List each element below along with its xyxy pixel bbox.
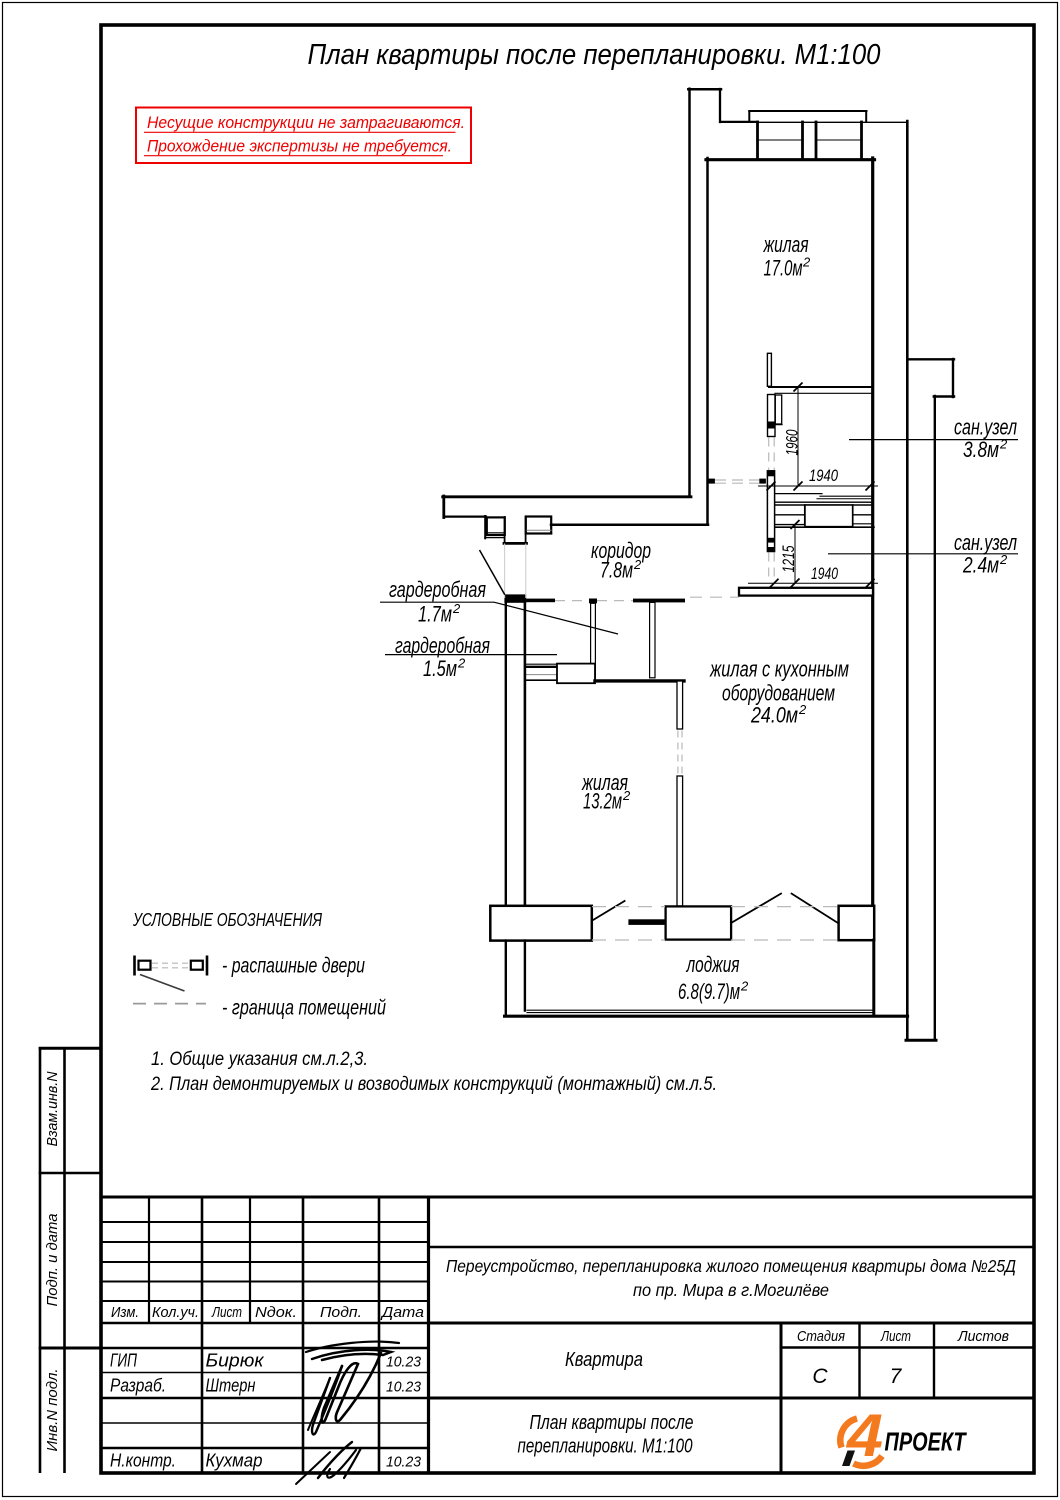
svg-text:1. Общие указания см.л.2,3.: 1. Общие указания см.л.2,3. bbox=[151, 1048, 368, 1070]
svg-text:1940: 1940 bbox=[809, 467, 839, 485]
svg-text:2: 2 bbox=[633, 557, 642, 572]
svg-text:2: 2 bbox=[452, 601, 461, 616]
svg-text:1215: 1215 bbox=[780, 545, 798, 573]
svg-text:24.0м: 24.0м bbox=[750, 703, 798, 728]
svg-text:2. План демонтируемых и возвод: 2. План демонтируемых и возводимых конст… bbox=[150, 1073, 717, 1095]
svg-text:2: 2 bbox=[999, 552, 1008, 567]
svg-text:ПРОЕКТ: ПРОЕКТ bbox=[885, 1427, 968, 1457]
svg-text:Дата: Дата bbox=[380, 1305, 424, 1321]
svg-text:13.2м: 13.2м bbox=[583, 789, 622, 814]
svg-text:Бирюк: Бирюк bbox=[206, 1351, 266, 1371]
svg-text:2: 2 bbox=[740, 979, 749, 994]
svg-text:10.23: 10.23 bbox=[386, 1454, 422, 1471]
svg-text:Листов: Листов bbox=[957, 1329, 1009, 1345]
svg-text:2: 2 bbox=[798, 702, 807, 717]
svg-text:Взам.инв.N: Взам.инв.N bbox=[44, 1071, 61, 1146]
svg-text:сан.узел: сан.узел bbox=[954, 530, 1017, 555]
svg-text:1.7м: 1.7м bbox=[418, 602, 452, 627]
svg-text:Лист: Лист bbox=[880, 1329, 911, 1345]
svg-text:10.23: 10.23 bbox=[386, 1379, 422, 1396]
svg-text:гардеробная: гардеробная bbox=[389, 577, 486, 602]
svg-text:перепланировки. М1:100: перепланировки. М1:100 bbox=[518, 1436, 693, 1458]
svg-text:1940: 1940 bbox=[811, 565, 839, 583]
svg-text:Nдок.: Nдок. bbox=[255, 1305, 297, 1321]
svg-text:Стадия: Стадия bbox=[797, 1329, 845, 1345]
svg-text:7: 7 bbox=[890, 1365, 903, 1388]
svg-text:Прохождение экспертизы не треб: Прохождение экспертизы не требуется. bbox=[147, 138, 452, 156]
svg-text:Подп.: Подп. bbox=[320, 1305, 362, 1321]
svg-text:2.4м: 2.4м bbox=[962, 553, 999, 578]
svg-text:- распашные двери: - распашные двери bbox=[222, 955, 365, 978]
svg-text:лоджия: лоджия bbox=[685, 952, 740, 977]
svg-text:Переустройство, перепланировка: Переустройство, перепланировка жилого по… bbox=[446, 1256, 1016, 1276]
svg-text:сан.узел: сан.узел bbox=[954, 415, 1017, 440]
svg-text:2: 2 bbox=[802, 255, 811, 270]
svg-text:6.8(9.7)м: 6.8(9.7)м bbox=[678, 979, 740, 1004]
svg-text:Изм.: Изм. bbox=[111, 1305, 139, 1321]
svg-text:гардеробная: гардеробная bbox=[395, 633, 490, 658]
svg-text:Кол.уч.: Кол.уч. bbox=[152, 1305, 199, 1321]
svg-text:Несущие конструкции не затраги: Несущие конструкции не затрагиваются. bbox=[147, 114, 465, 132]
svg-text:Квартира: Квартира bbox=[565, 1349, 643, 1371]
svg-text:Н.контр.: Н.контр. bbox=[110, 1451, 176, 1471]
svg-text:Разраб.: Разраб. bbox=[110, 1376, 166, 1396]
svg-text:17.0м: 17.0м bbox=[764, 256, 803, 281]
svg-text:7.8м: 7.8м bbox=[600, 558, 633, 583]
svg-text:План квартиры после: План квартиры после bbox=[530, 1412, 694, 1434]
svg-text:Подп. и дата: Подп. и дата bbox=[44, 1214, 61, 1307]
svg-text:жилая с кухонным: жилая с кухонным bbox=[709, 657, 849, 682]
svg-text:1.5м: 1.5м bbox=[423, 656, 457, 681]
svg-text:С: С bbox=[812, 1365, 828, 1388]
svg-text:- граница помещений: - граница помещений bbox=[222, 997, 386, 1020]
svg-text:по пр. Мира в г.Могилёве: по пр. Мира в г.Могилёве bbox=[633, 1280, 829, 1300]
svg-text:2: 2 bbox=[622, 788, 631, 803]
svg-text:ГИП: ГИП bbox=[110, 1351, 138, 1371]
svg-text:УСЛОВНЫЕ ОБОЗНАЧЕНИЯ: УСЛОВНЫЕ ОБОЗНАЧЕНИЯ bbox=[132, 910, 322, 930]
svg-text:План квартиры после перепланир: План квартиры после перепланировки. М1:1… bbox=[308, 39, 881, 71]
svg-text:жилая: жилая bbox=[763, 232, 809, 257]
svg-text:2: 2 bbox=[457, 656, 466, 671]
svg-text:3.8м: 3.8м bbox=[963, 437, 999, 462]
svg-text:1960: 1960 bbox=[784, 429, 802, 456]
svg-text:Лист: Лист bbox=[211, 1305, 242, 1321]
svg-text:Кухмар: Кухмар bbox=[206, 1451, 263, 1471]
svg-text:Штерн: Штерн bbox=[206, 1376, 256, 1396]
svg-text:Инв.N подл.: Инв.N подл. bbox=[44, 1369, 61, 1452]
svg-text:10.23: 10.23 bbox=[386, 1354, 422, 1371]
svg-text:4: 4 bbox=[846, 1402, 883, 1469]
svg-text:2: 2 bbox=[999, 437, 1008, 452]
